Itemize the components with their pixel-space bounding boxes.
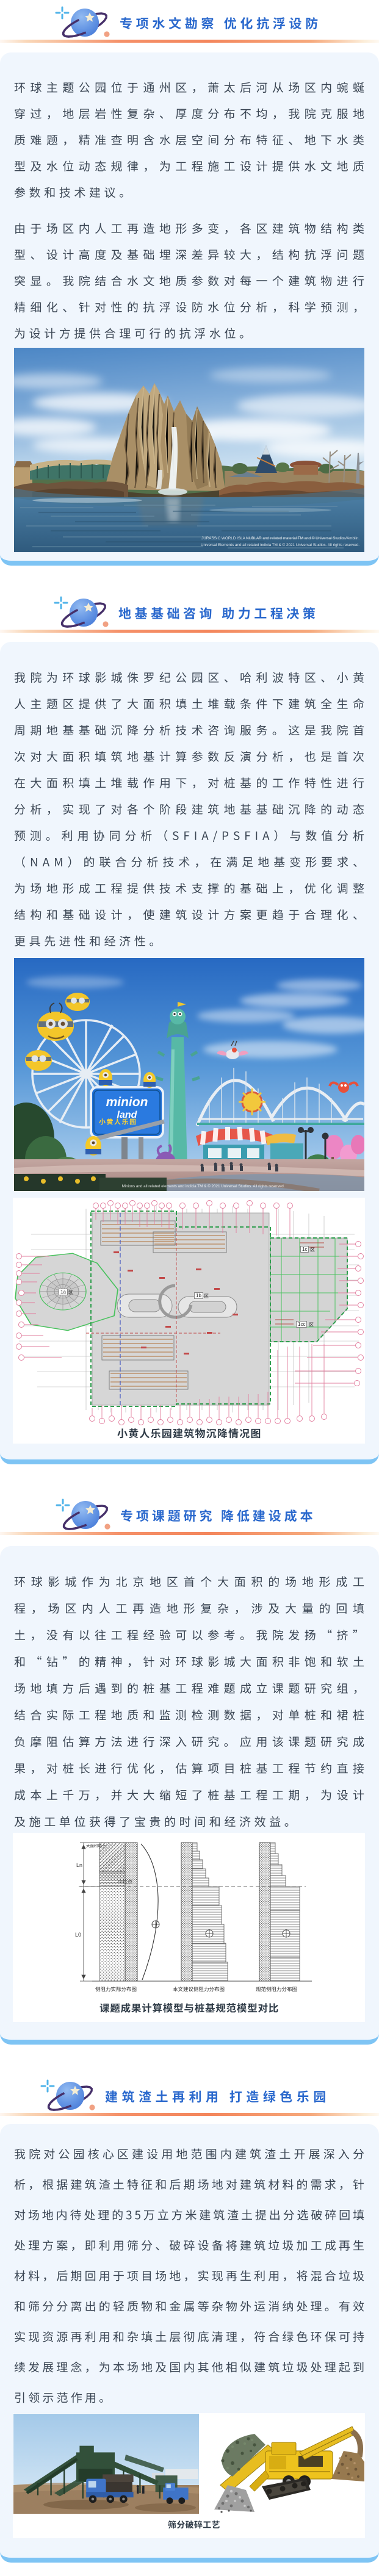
svg-text:Ln: Ln <box>76 1862 82 1868</box>
svg-text:Universal Elements and all rel: Universal Elements and all related indic… <box>201 542 359 547</box>
svg-text:JURASSIC WORLD ISLA NUBLAR and: JURASSIC WORLD ISLA NUBLAR and related m… <box>201 536 359 541</box>
svg-text:L0: L0 <box>75 1932 81 1938</box>
svg-text:minion: minion <box>106 1095 148 1109</box>
svg-text:Minions and all related elemen: Minions and all related elements and ind… <box>121 1184 284 1189</box>
